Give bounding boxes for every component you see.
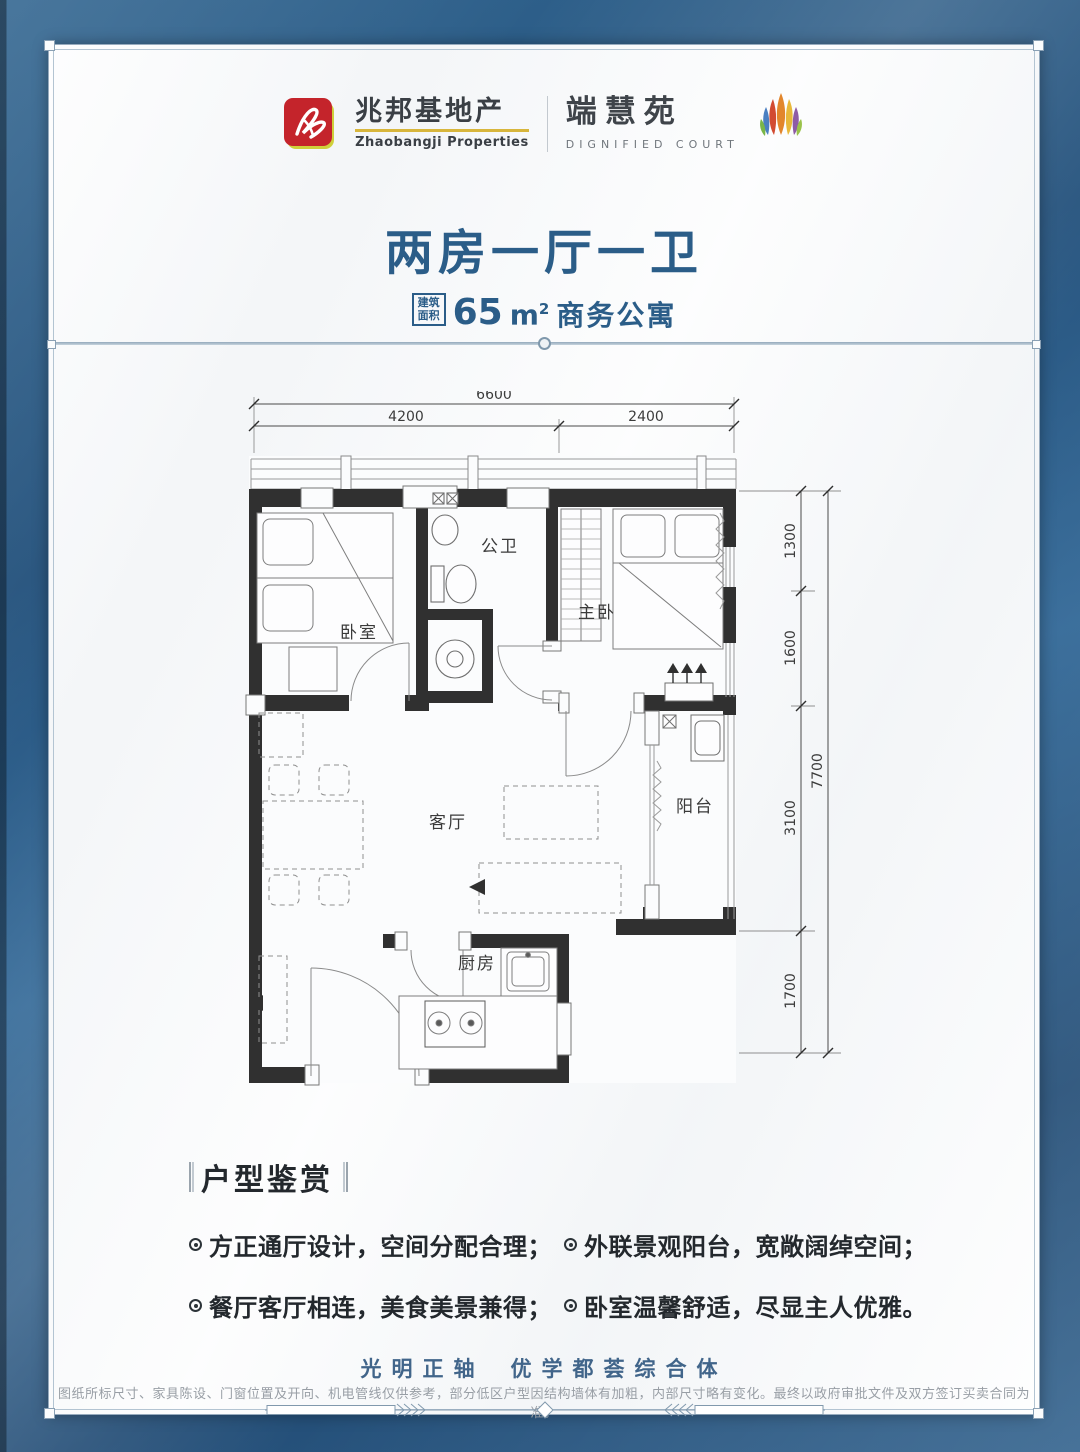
developer-logo-icon [283,97,337,151]
slogan-part2: 优学都荟综合体 [511,1353,728,1383]
footer-decoration [265,1400,825,1420]
slogan: 光明正轴 优学都荟综合体 [49,1353,1039,1383]
slogan-part1: 光明正轴 [361,1353,485,1383]
dim-top-left: 4200 [388,409,424,425]
brand-header: 兆邦基地产 Zhaobangji Properties 端慧苑 DIGNIFIE… [49,91,1039,157]
diamond-icon [537,1402,553,1418]
brand-divider [547,96,548,152]
highlight-item: 外联景观阳台，宽敞阔绰空间； [564,1227,949,1262]
area-row: 建筑 面积 65 m2 商务公寓 [49,293,1039,329]
developer-name-en: Zhaobangji Properties [355,135,529,150]
master-furniture [561,509,724,649]
bullet-icon [564,1299,577,1312]
divider-end-node [1032,340,1041,349]
developer-name-block: 兆邦基地产 Zhaobangji Properties [355,98,529,150]
area-suffix: 商务公寓 [556,303,676,330]
section-divider [49,342,1039,345]
bullet-icon [564,1238,577,1251]
heading-bar-icon [346,1162,348,1192]
highlights-section: 户型鉴赏 方正通厅设计，空间分配合理； 外联景观阳台，宽敞阔绰空间； 餐厅客厅相… [189,1155,949,1323]
dim-right-seg2: 1600 [783,630,799,666]
room-label-bedroom: 卧室 [340,623,378,643]
developer-name-cn: 兆邦基地产 [355,98,505,125]
room-label-master: 主卧 [578,603,616,623]
highlights-heading: 户型鉴赏 [189,1155,348,1199]
content-card: 兆邦基地产 Zhaobangji Properties 端慧苑 DIGNIFIE… [48,44,1040,1415]
gold-underline [355,129,529,132]
project-name-cn: 端慧苑 [566,97,683,128]
dim-right-seg1: 1300 [783,523,799,559]
highlights-grid: 方正通厅设计，空间分配合理； 外联景观阳台，宽敞阔绰空间； 餐厅客厅相连，美食美… [189,1227,949,1323]
highlight-item: 卧室温馨舒适，尽显主人优雅。 [564,1288,949,1323]
bullet-icon [189,1238,202,1251]
area-label-line1: 建筑 [418,297,440,310]
corner-node-icon [44,40,55,51]
dim-top-total: 6600 [476,391,512,403]
project-name-block: 端慧苑 DIGNIFIED COURT [566,97,739,151]
area-label-line2: 面积 [418,310,440,323]
room-label-living: 客厅 [429,813,467,833]
area-unit: m2 [510,302,550,329]
project-name-en: DIGNIFIED COURT [566,138,739,151]
dim-right-total: 7700 [810,753,826,789]
corner-node-icon [1033,40,1044,51]
dim-right-seg4: 1700 [783,973,799,1009]
highlights-heading-text: 户型鉴赏 [201,1155,333,1199]
divider-end-node [47,340,56,349]
unit-type-title: 两房一厅一卫 [49,213,1039,283]
room-label-balcony: 阳台 [676,797,714,817]
headline-block: 两房一厅一卫 建筑 面积 65 m2 商务公寓 [49,213,1039,329]
dim-right-seg3: 3100 [783,800,799,836]
room-label-bathroom: 公卫 [481,537,519,557]
divider-dot-icon [538,337,551,350]
bullet-icon [189,1299,202,1312]
area-label-box: 建筑 面积 [412,293,446,326]
area-number: 65 [453,297,503,329]
heading-bar-icon [189,1162,191,1192]
dim-top-right: 2400 [628,409,664,425]
highlight-item: 方正通厅设计，空间分配合理； [189,1227,564,1262]
floorplan: 6600 4200 2400 1300 1600 3100 1700 7700 [219,391,879,1103]
project-logo-icon [757,91,805,157]
poster-page: 兆邦基地产 Zhaobangji Properties 端慧苑 DIGNIFIE… [0,0,1080,1452]
highlight-item: 餐厅客厅相连，美食美景兼得； [189,1288,564,1323]
room-label-kitchen: 厨房 [458,954,496,974]
